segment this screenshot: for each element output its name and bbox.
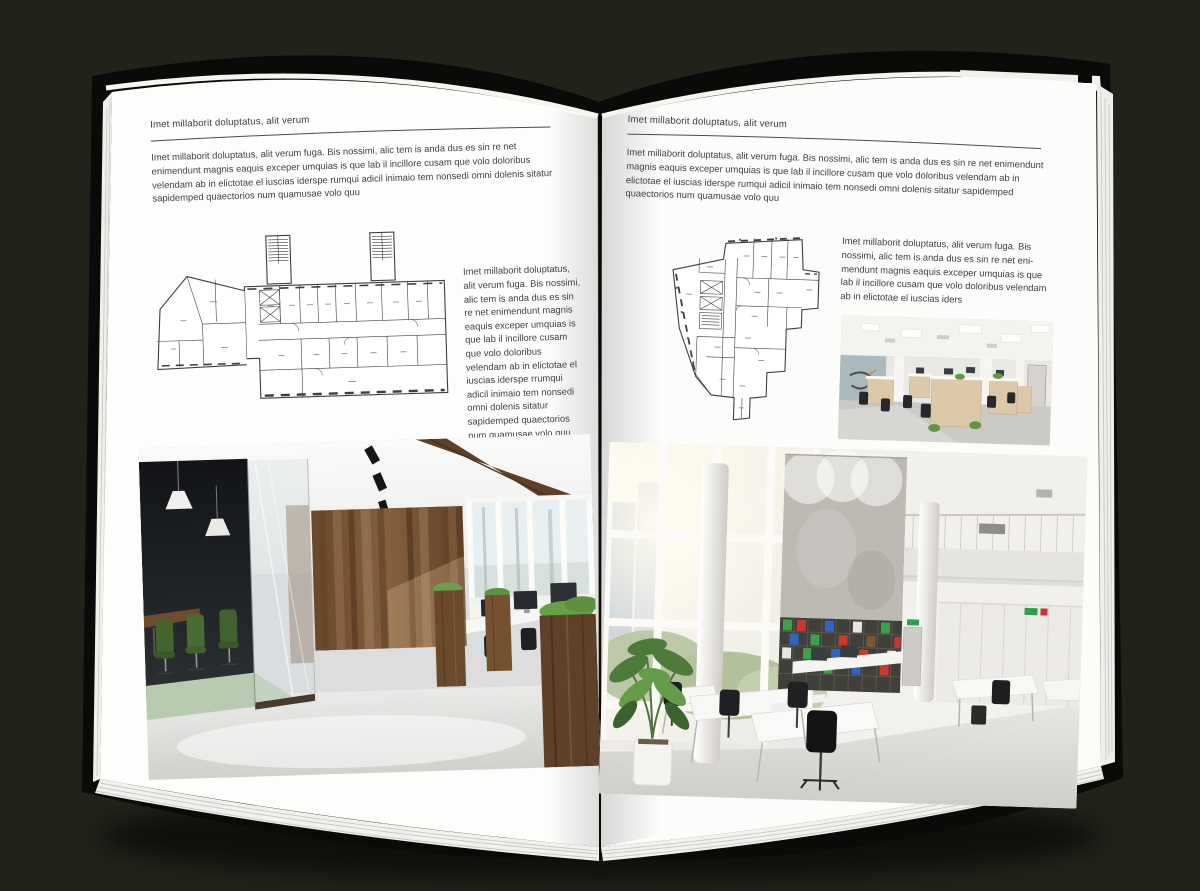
right-floorplan bbox=[638, 215, 842, 431]
right-photo-large bbox=[599, 442, 1088, 809]
right-side-paragraph: Imet millaborit doluptatus, alit verum f… bbox=[840, 234, 1048, 308]
book-spread-mockup: Imet millaborit doluptatus, alit verum I… bbox=[0, 0, 1200, 891]
left-page-header: Imet millaborit doluptatus, alit verum bbox=[150, 115, 310, 131]
left-floorplan bbox=[148, 220, 456, 421]
left-photo-large bbox=[138, 434, 600, 780]
right-intro-paragraph: Imet millaborit doluptatus, alit verum f… bbox=[625, 146, 1047, 214]
foreground-planter bbox=[539, 596, 601, 768]
right-page: Imet millaborit doluptatus, alit verum I… bbox=[600, 112, 1083, 816]
right-photo-small bbox=[838, 315, 1054, 446]
right-page-header: Imet millaborit doluptatus, alit verum bbox=[628, 114, 788, 130]
concrete-wall bbox=[778, 448, 907, 622]
left-side-paragraph: Imet millaborit doluptatus, alit verum f… bbox=[463, 262, 586, 442]
left-intro-paragraph: Imet millaborit doluptatus, alit verum f… bbox=[151, 138, 561, 205]
glass-partition bbox=[247, 459, 315, 710]
left-page: Imet millaborit doluptatus, alit verum I… bbox=[138, 104, 591, 785]
corridor-door bbox=[902, 619, 922, 686]
